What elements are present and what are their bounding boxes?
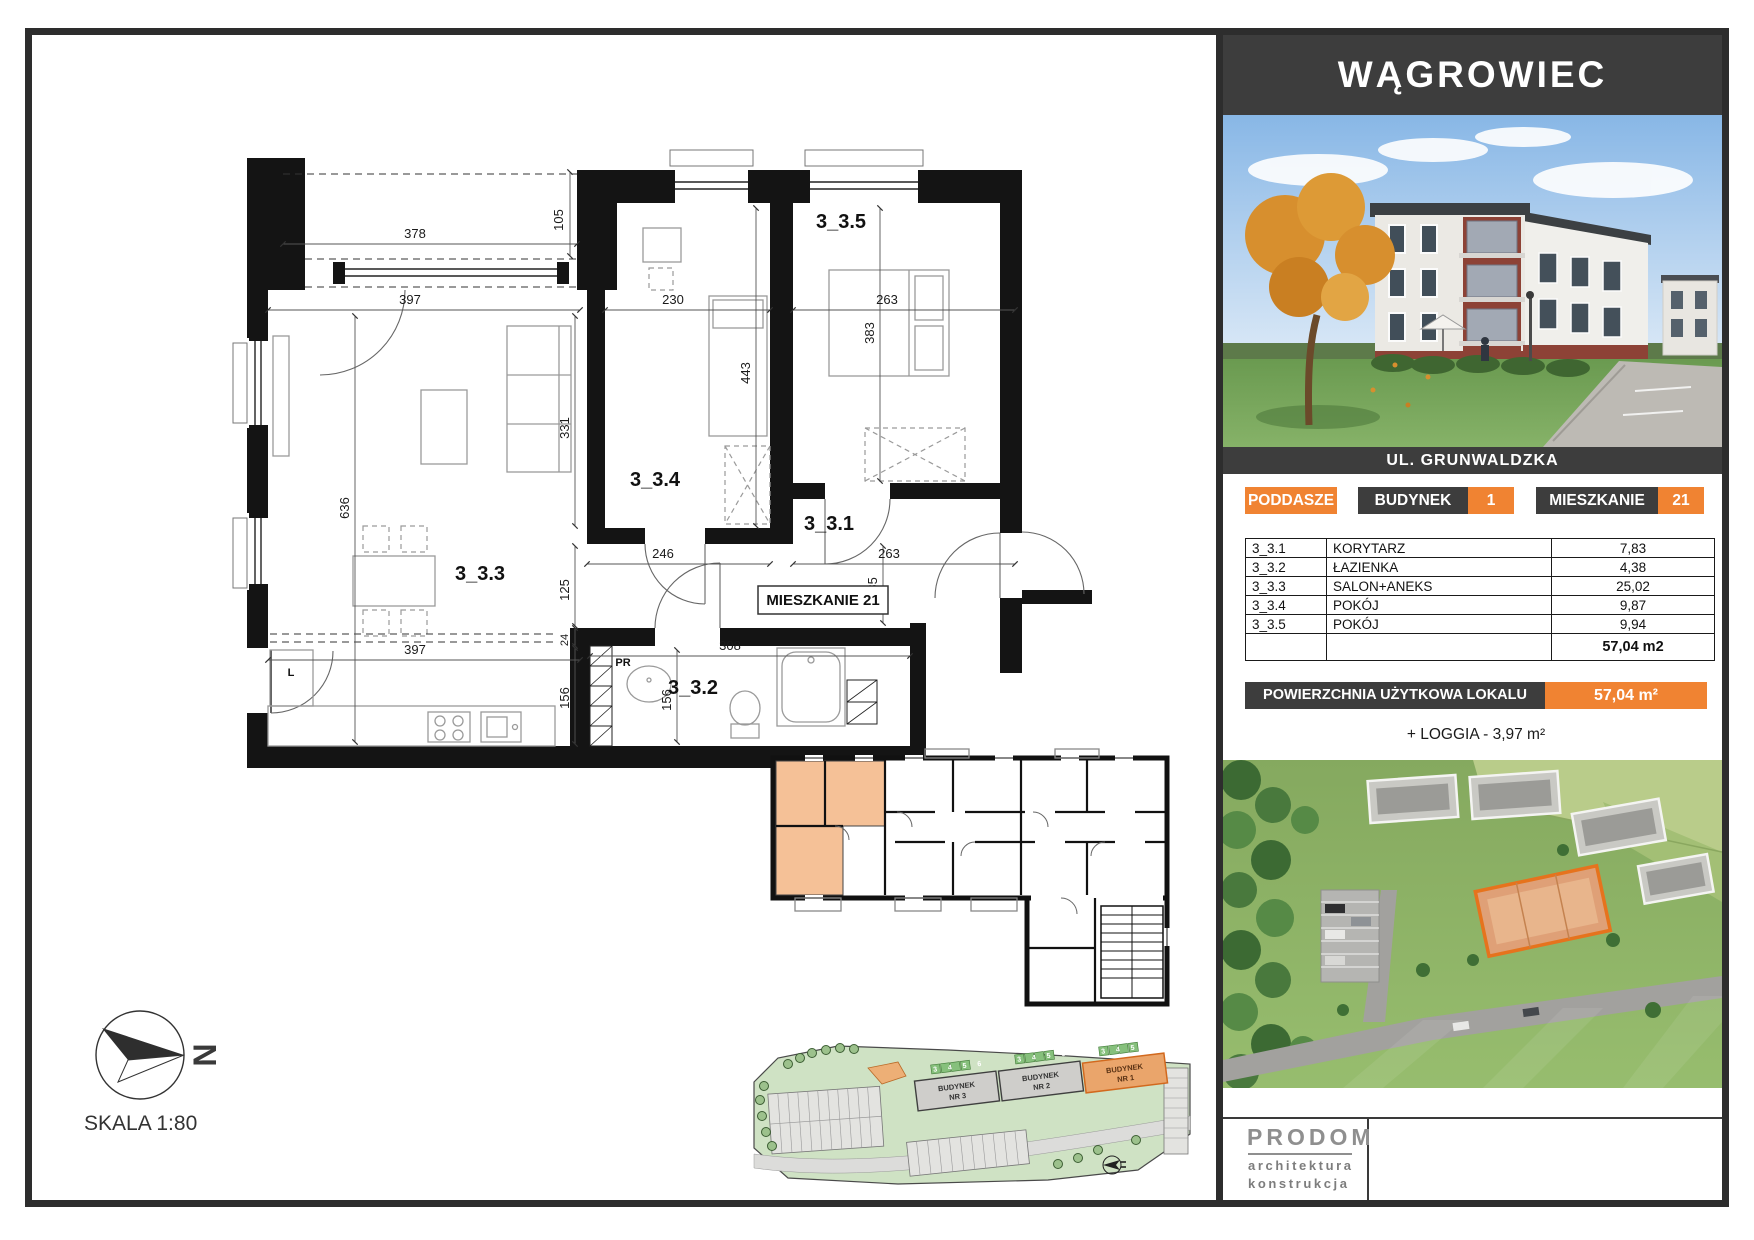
room-label-bedroom1: 3_3.4: [630, 469, 681, 491]
room-label-bathroom: 3_3.2: [668, 677, 718, 699]
room-area: 9,87: [1552, 596, 1715, 615]
room-name: POKÓJ: [1327, 615, 1552, 634]
room-name: SALON+ANEKS: [1327, 577, 1552, 596]
background-building: [1661, 275, 1719, 355]
dim-443: 443: [738, 362, 753, 384]
dim-105: 105: [551, 209, 566, 231]
room-code: 3_3.4: [1246, 596, 1327, 615]
room-label-bedroom2: 3_3.5: [816, 211, 866, 233]
usable-area-label: POWIERZCHNIA UŻYTKOWA LOKALU: [1245, 682, 1545, 709]
logo-name: PRODOM: [1247, 1124, 1447, 1151]
total-area: 57,04 m2: [1552, 634, 1715, 661]
room-code: 3_3.3: [1246, 577, 1327, 596]
city-title: WĄGROWIEC: [1338, 54, 1608, 95]
parking-lot: [1321, 890, 1379, 982]
dim-378: 378: [404, 226, 426, 241]
person: [1481, 337, 1489, 361]
apartment-label-badge: MIESZKANIE: [1536, 487, 1658, 514]
table-row: 3_3.1 KORYTARZ 7,83: [1246, 539, 1715, 558]
room-code: 3_3.2: [1246, 558, 1327, 577]
loggia: [283, 174, 577, 375]
logo-rule: [1248, 1153, 1352, 1155]
dim-230: 230: [662, 292, 684, 307]
usable-area-value: 57,04 m²: [1545, 682, 1707, 709]
dim-24: 24: [559, 634, 571, 646]
floor-plan-drawing: 378 105 397 230 263 331 636 443 383 246 …: [225, 128, 1115, 773]
dim-636: 636: [337, 497, 352, 519]
fridge-label: L: [288, 667, 295, 679]
brochure-sheet: 378 105 397 230 263 331 636 443 383 246 …: [0, 0, 1754, 1240]
table-row: 3_3.2 ŁAZIENKA 4,38: [1246, 558, 1715, 577]
dim-308: 308: [719, 638, 741, 653]
bathroom-fixtures: [590, 646, 877, 746]
street-name: UL. GRUNWALDZKA: [1386, 452, 1558, 469]
dim-263-top: 263: [876, 292, 898, 307]
room-area: 4,38: [1552, 558, 1715, 577]
apartment-box-label: MIESZKANIE 21: [766, 592, 879, 609]
parking-west: [768, 1086, 884, 1154]
room-area: 9,94: [1552, 615, 1715, 634]
table-total-row: 57,04 m2: [1246, 634, 1715, 661]
north-letter: N: [187, 1043, 223, 1066]
dimension-lines: [268, 172, 1015, 744]
site-building-1: 3 4 5 6 BUDYNEK NR 1: [1081, 1039, 1168, 1093]
dim-125: 125: [557, 579, 572, 601]
logo-subtitle-1: architektura: [1248, 1158, 1354, 1173]
scale-label: SKALA 1:80: [84, 1112, 197, 1136]
room-code: 3_3.5: [1246, 615, 1327, 634]
west-windows: [233, 333, 333, 713]
room-area-table: 3_3.1 KORYTARZ 7,83 3_3.2 ŁAZIENKA 4,38 …: [1245, 538, 1715, 661]
dim-383: 383: [862, 322, 877, 344]
salon-furniture: [270, 326, 571, 642]
compass-needle: [102, 1028, 184, 1060]
aerial-render-photo: [1223, 760, 1722, 1088]
room-name: KORYTARZ: [1327, 539, 1552, 558]
table-row: 3_3.5 POKÓJ 9,94: [1246, 615, 1715, 634]
north-compass: N: [88, 1000, 238, 1112]
dim-397-bottom: 397: [404, 642, 426, 657]
building-label-badge: BUDYNEK: [1358, 487, 1468, 514]
table-row: 3_3.4 POKÓJ 9,87: [1246, 596, 1715, 615]
dim-331: 331: [557, 417, 572, 439]
dim-156-left: 156: [557, 687, 572, 709]
dim-397-top: 397: [399, 292, 421, 307]
building-number-badge: 1: [1468, 487, 1514, 514]
site-plan: 3 4 5 6 BUDYNEK NR 3 3 4 5 6 BUDYNEK NR …: [748, 1038, 1196, 1190]
room-label-corridor: 3_3.1: [804, 513, 854, 535]
washer-label: PR: [615, 657, 630, 669]
room-code: 3_3.1: [1246, 539, 1327, 558]
loggia-note: + LOGGIA - 3,97 m²: [1245, 726, 1707, 744]
room-area: 25,02: [1552, 577, 1715, 596]
room-label-salon: 3_3.3: [455, 563, 505, 585]
building-render-photo: [1223, 115, 1722, 447]
panel-divider: [1216, 35, 1223, 1200]
logo-subtitle-2: konstrukcja: [1248, 1176, 1350, 1191]
room-name: POKÓJ: [1327, 596, 1552, 615]
balconies: [1459, 221, 1525, 346]
apartment-number-badge: 21: [1658, 487, 1704, 514]
building-floor-overview: [765, 748, 1175, 1013]
dim-263-mid: 263: [878, 546, 900, 561]
table-row: 3_3.3 SALON+ANEKS 25,02: [1246, 577, 1715, 596]
room-area: 7,83: [1552, 539, 1715, 558]
room-name: ŁAZIENKA: [1327, 558, 1552, 577]
floor-badge: PODDASZE: [1245, 487, 1337, 514]
project-title-bar: WĄGROWIEC: [1223, 35, 1722, 115]
street-bar: UL. GRUNWALDZKA: [1223, 447, 1722, 474]
dim-246: 246: [652, 546, 674, 561]
